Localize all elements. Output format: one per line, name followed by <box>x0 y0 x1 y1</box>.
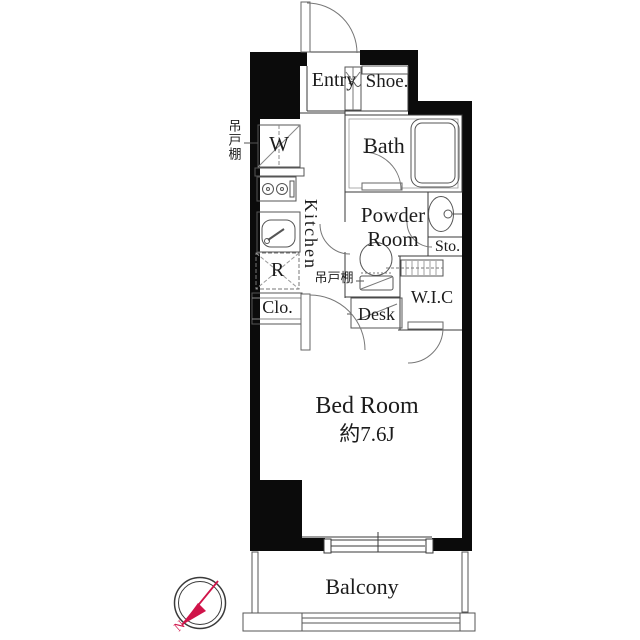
wic-door-arc <box>408 328 443 363</box>
wic-door-leaf <box>408 322 443 329</box>
entry-door-arc <box>307 3 357 53</box>
label-shoe: Shoe. <box>361 71 413 92</box>
label-powder-line1: Powder <box>348 204 438 228</box>
window-cap-left <box>324 539 331 553</box>
floorplan-canvas: N Entry Shoe. Bath Powder Room Sto. W.I.… <box>0 0 640 640</box>
wall-segment <box>250 52 300 119</box>
bathtub-inner <box>415 123 455 183</box>
balcony-railing <box>243 613 475 631</box>
stove-burner-dot <box>267 188 270 191</box>
label-wic: W.I.C <box>402 287 462 307</box>
wall-segment <box>462 101 472 551</box>
sink-faucet-knob <box>265 239 270 244</box>
wall-segment <box>250 480 302 551</box>
bedroom-window <box>324 532 433 553</box>
sink-faucet <box>268 229 284 240</box>
cupboard-leader-kitchen <box>356 277 364 285</box>
label-washer: W <box>258 133 300 157</box>
label-powder-room: Powder Room <box>348 204 438 251</box>
compass-needle-head <box>182 603 206 625</box>
label-closet: Clo. <box>253 297 302 317</box>
toilet-diagonal <box>361 277 392 289</box>
stove-burner <box>277 184 288 195</box>
window-cap-right <box>426 539 433 553</box>
wall-segment <box>360 50 418 65</box>
label-refrigerator: R <box>257 259 298 281</box>
entry-door-leaf <box>301 2 310 52</box>
compass: N <box>171 578 226 635</box>
stove-grill <box>290 181 294 197</box>
entry-door <box>301 2 357 53</box>
label-storage: Sto. <box>429 238 466 256</box>
label-powder-line2: Room <box>348 228 438 252</box>
label-hanging-cupboard-left: 吊戸棚 <box>225 119 240 175</box>
floorplan-drawing: N <box>0 0 640 640</box>
balcony-wall-left <box>252 552 258 614</box>
label-kitchen: Kitchen <box>301 199 321 273</box>
wall-segment <box>302 538 325 551</box>
wall-segment <box>408 101 472 115</box>
bedroom-door-leaf <box>301 294 310 350</box>
stove-burner-dot <box>281 188 284 191</box>
powder-door-arc <box>320 224 350 254</box>
label-desk: Desk <box>352 304 401 324</box>
label-bedroom: Bed Room 約7.6J <box>267 393 467 446</box>
label-entry: Entry <box>306 69 362 91</box>
label-bedroom-name: Bed Room <box>267 393 467 420</box>
bath-door-leaf <box>362 183 402 190</box>
label-bedroom-size: 約7.6J <box>267 423 467 447</box>
stove-burner <box>263 184 274 195</box>
label-hanging-cupboard-kitchen: 吊戸棚 <box>311 272 357 287</box>
washer-shelf <box>255 168 304 176</box>
label-balcony: Balcony <box>287 575 437 600</box>
basin-faucet <box>444 210 452 218</box>
balcony-wall-right <box>462 552 468 612</box>
bathtub <box>411 119 459 187</box>
label-bath: Bath <box>350 134 418 159</box>
